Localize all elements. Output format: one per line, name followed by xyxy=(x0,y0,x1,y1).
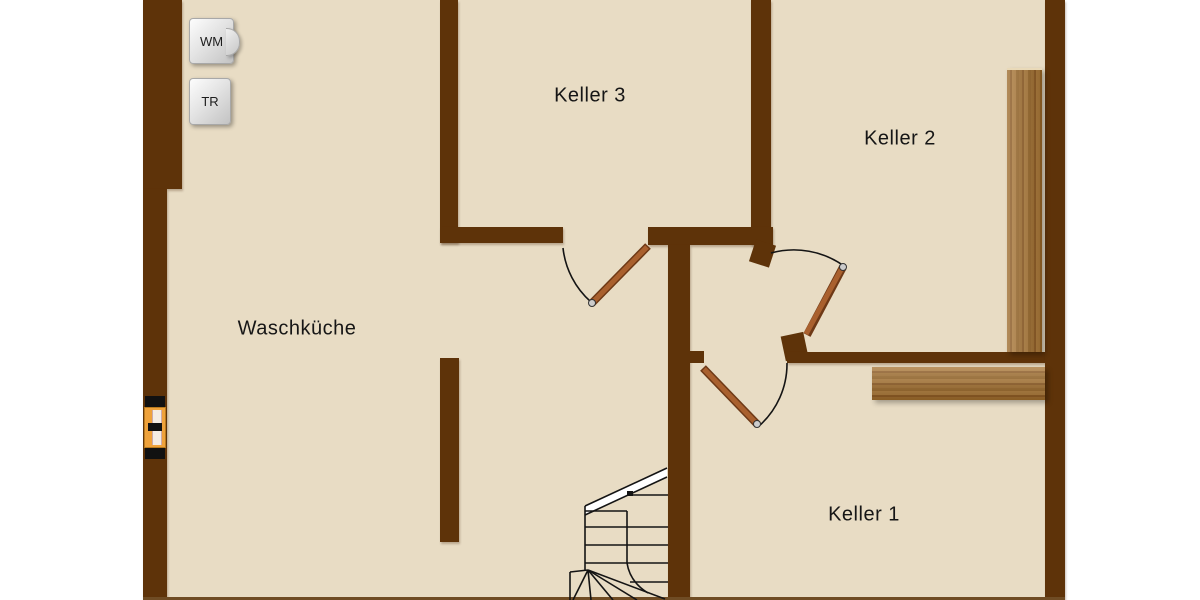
washing-machine-box: WM xyxy=(189,18,234,64)
wall-left-upper xyxy=(143,0,182,189)
wall-keller3-keller2-divider xyxy=(751,0,771,245)
dryer-box: TR xyxy=(189,78,231,125)
wood-panel-vertical-icon xyxy=(1007,68,1042,352)
window-frame xyxy=(144,407,166,448)
window-sash xyxy=(148,423,162,431)
room-label-keller1: Keller 1 xyxy=(828,504,900,527)
wall-central-vertical xyxy=(668,245,690,600)
wall-right xyxy=(1045,0,1065,600)
room-label-keller3: Keller 3 xyxy=(554,85,626,108)
room-label-keller2: Keller 2 xyxy=(864,128,936,151)
wall-keller3-bottom xyxy=(440,227,563,243)
dryer-label: TR xyxy=(201,94,218,109)
room-label-waschkueche: Waschküche xyxy=(238,318,357,341)
washing-machine-label: WM xyxy=(200,34,223,49)
window-cap-top xyxy=(145,396,165,407)
wall-stub-keller1-door xyxy=(688,351,704,363)
window-icon xyxy=(143,395,167,463)
wall-waschkueche-partition xyxy=(440,358,459,542)
wood-panel-horizontal-icon xyxy=(872,367,1045,400)
floor-plan: WM TR xyxy=(0,0,1200,600)
wall-keller3-left xyxy=(440,0,458,243)
wall-keller1-keller2-divider xyxy=(787,352,1045,363)
window-cap-bottom xyxy=(145,448,165,459)
